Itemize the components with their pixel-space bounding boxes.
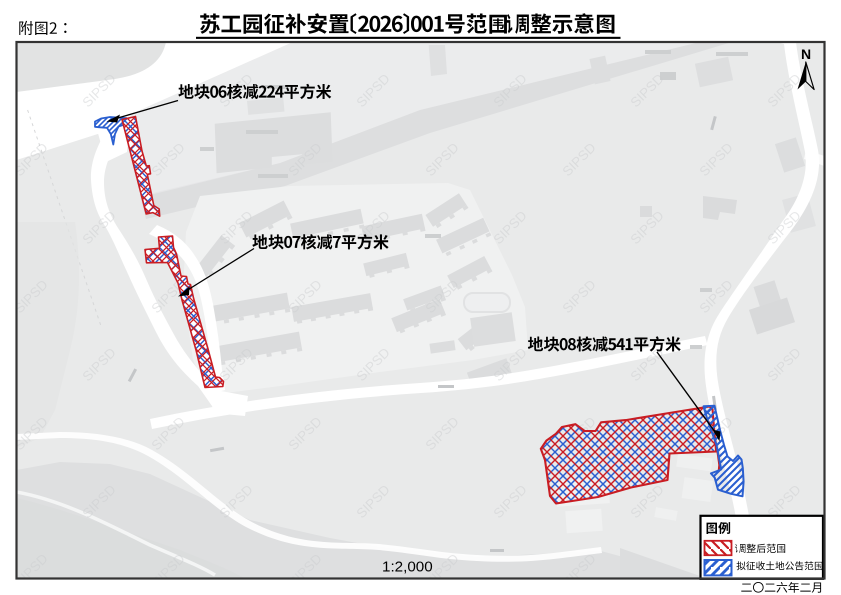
svg-text:N: N <box>801 46 811 62</box>
svg-text:1:2,000: 1:2,000 <box>382 559 433 576</box>
